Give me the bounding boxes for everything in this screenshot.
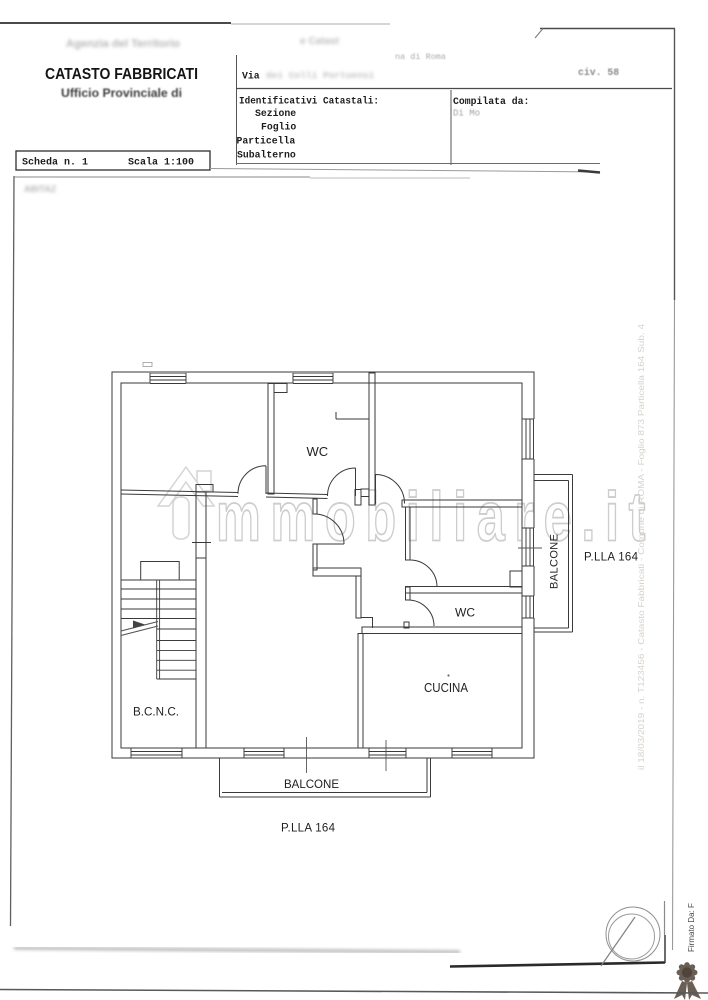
svg-text:mmobiliare.it: mmobiliare.it (216, 477, 655, 555)
svg-text:CUCINA: CUCINA (424, 681, 469, 695)
svg-text:Compilata da:: Compilata da: (453, 96, 529, 107)
svg-text:Scheda n. 1: Scheda n. 1 (22, 157, 88, 169)
svg-text:P.LLA 164: P.LLA 164 (584, 552, 639, 564)
svg-text:Firmato Da: F: Firmato Da: F (687, 903, 696, 952)
svg-text:ABITAZ: ABITAZ (24, 184, 57, 194)
svg-text:WC: WC (455, 606, 475, 620)
svg-text:dei Colli Portuensi: dei Colli Portuensi (266, 70, 375, 81)
svg-text:Scala 1:100: Scala 1:100 (128, 157, 194, 169)
svg-text:P.LLA 164: P.LLA 164 (281, 823, 336, 835)
svg-text:Via: Via (242, 71, 260, 82)
svg-text:Subalterno: Subalterno (237, 149, 296, 160)
svg-text:WC: WC (307, 444, 329, 459)
svg-text:Particella: Particella (237, 135, 296, 146)
svg-text:Sezione: Sezione (255, 108, 296, 119)
svg-text:BALCONE: BALCONE (549, 534, 561, 589)
svg-text:B.C.N.C.: B.C.N.C. (133, 705, 179, 719)
svg-text:Di Mo: Di Mo (453, 109, 480, 119)
svg-text:Identificativi Catastali:: Identificativi Catastali: (239, 96, 379, 107)
svg-text:Foglio: Foglio (261, 122, 296, 133)
svg-text:civ. 58: civ. 58 (578, 67, 619, 78)
svg-text:Ufficio Provinciale di: Ufficio Provinciale di (61, 88, 182, 100)
svg-text:e Catast: e Catast (300, 36, 340, 47)
svg-text:Agenzia del Territorio: Agenzia del Territorio (66, 38, 180, 50)
svg-text:na di Roma: na di Roma (395, 52, 446, 62)
svg-text:BALCONE: BALCONE (284, 777, 339, 791)
svg-text:CATASTO FABBRICATI: CATASTO FABBRICATI (45, 66, 198, 83)
svg-text:il 18/03/2019 - n. T123456 - C: il 18/03/2019 - n. T123456 - Catasto Fab… (636, 324, 646, 770)
